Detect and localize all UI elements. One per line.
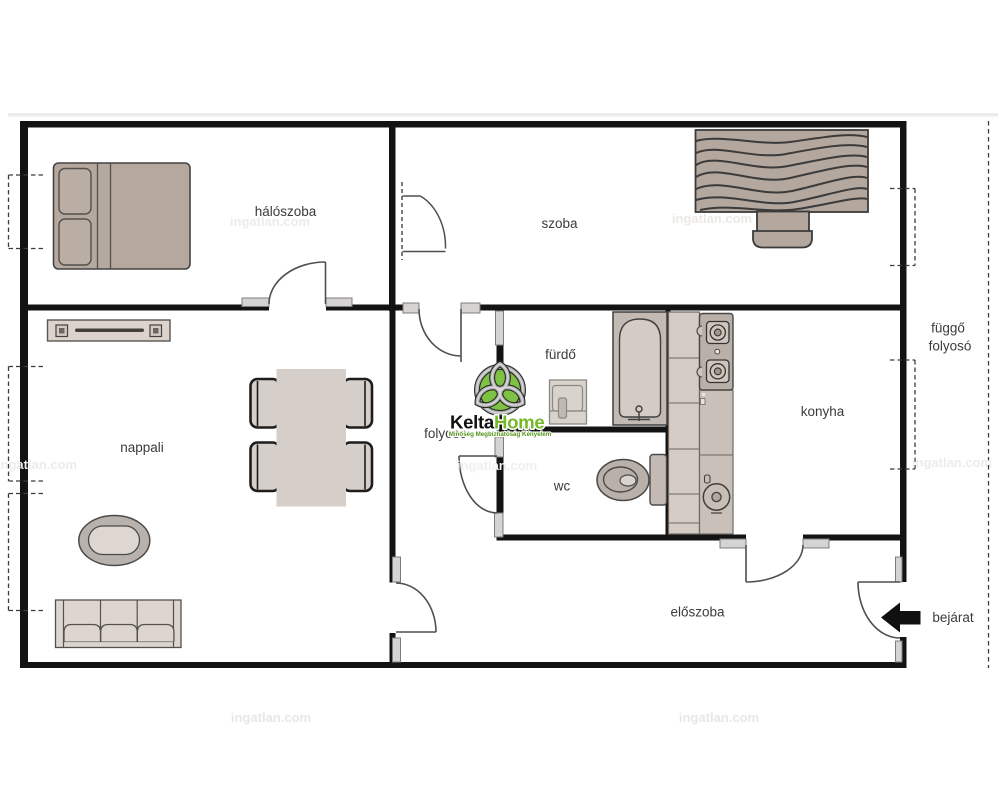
svg-text:bejárat: bejárat [932, 610, 974, 625]
svg-text:ingatlan.com: ingatlan.com [912, 455, 992, 470]
svg-text:ingatlan.com: ingatlan.com [0, 457, 77, 472]
svg-text:wc: wc [553, 479, 571, 494]
svg-text:fürdő: fürdő [545, 347, 576, 362]
svg-text:nappali: nappali [120, 440, 164, 455]
svg-text:hálószoba: hálószoba [255, 204, 317, 219]
svg-text:függő: függő [931, 321, 965, 336]
svg-text:KeltaHome: KeltaHome [450, 412, 544, 433]
svg-text:ingatlan.com: ingatlan.com [679, 710, 759, 725]
svg-text:előszoba: előszoba [670, 605, 725, 620]
svg-text:konyha: konyha [801, 404, 845, 419]
svg-text:ingatlan.com: ingatlan.com [231, 710, 311, 725]
svg-text:szoba: szoba [541, 216, 578, 231]
svg-text:folyosó: folyosó [929, 339, 972, 354]
svg-text:ingatlan.com: ingatlan.com [457, 458, 537, 473]
svg-text:ingatlan.com: ingatlan.com [672, 211, 752, 226]
svg-text:Minőség Megbízhatóság Kényelem: Minőség Megbízhatóság Kényelem [449, 431, 552, 438]
